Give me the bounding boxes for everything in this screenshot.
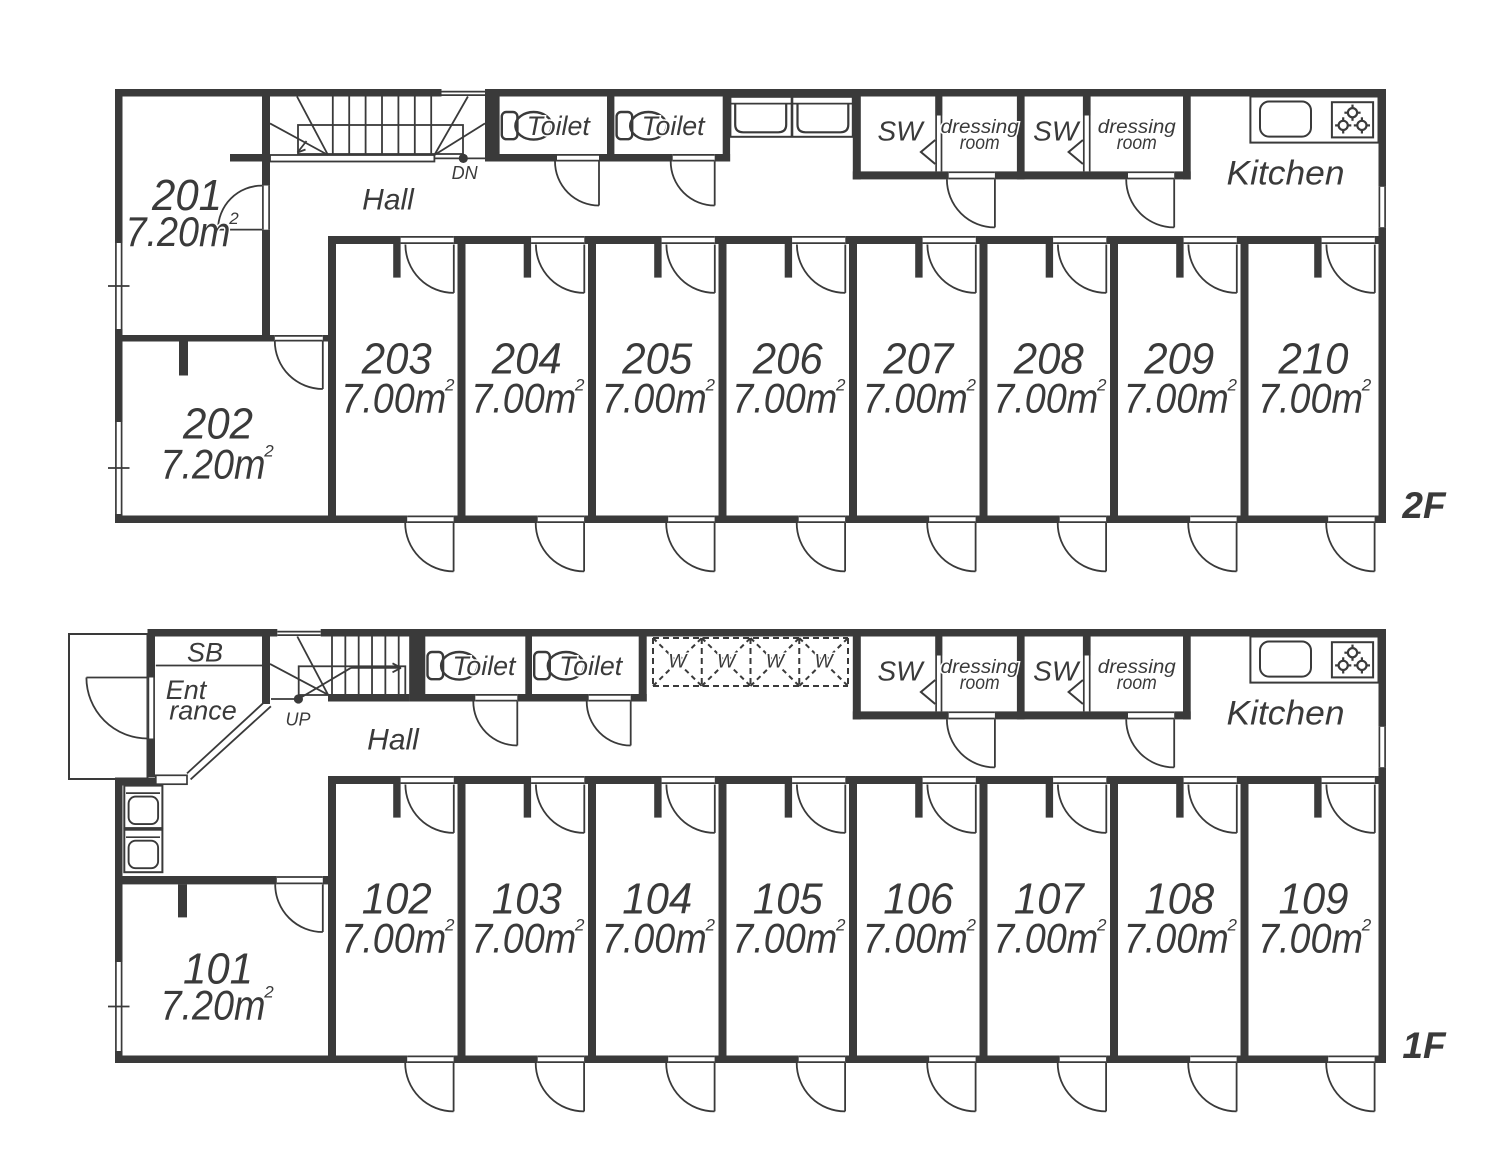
svg-text:Kitchen: Kitchen (1227, 154, 1345, 192)
svg-text:Hall: Hall (367, 724, 420, 757)
svg-text:7.00m: 7.00m (1124, 375, 1229, 422)
svg-text:7.20m: 7.20m (126, 208, 231, 255)
svg-text:2: 2 (705, 376, 716, 395)
svg-text:1F: 1F (1402, 1025, 1447, 1066)
svg-text:7.00m: 7.00m (863, 375, 968, 422)
svg-text:Toilet: Toilet (559, 651, 624, 681)
svg-text:W: W (815, 652, 835, 673)
svg-text:7.20m: 7.20m (161, 441, 266, 488)
svg-text:rance: rance (169, 696, 237, 726)
svg-text:7.00m: 7.00m (1124, 915, 1229, 962)
svg-text:2: 2 (263, 442, 274, 461)
svg-text:7.00m: 7.00m (993, 915, 1098, 962)
svg-text:2: 2 (1227, 376, 1238, 395)
svg-text:Toilet: Toilet (453, 651, 518, 681)
svg-text:W: W (668, 652, 688, 673)
svg-text:2: 2 (1361, 916, 1372, 935)
svg-text:2: 2 (1096, 916, 1107, 935)
svg-text:2F: 2F (1401, 485, 1447, 526)
svg-text:7.00m: 7.00m (732, 915, 837, 962)
svg-text:2: 2 (263, 983, 274, 1002)
svg-text:SW: SW (877, 116, 925, 147)
svg-text:room: room (1117, 133, 1157, 154)
svg-text:Kitchen: Kitchen (1227, 694, 1345, 732)
svg-text:room: room (960, 673, 1000, 694)
svg-text:2: 2 (1227, 916, 1238, 935)
svg-text:2: 2 (835, 916, 846, 935)
svg-text:Hall: Hall (362, 184, 415, 217)
svg-text:2: 2 (966, 376, 977, 395)
svg-text:7.00m: 7.00m (993, 375, 1098, 422)
svg-text:2: 2 (574, 376, 585, 395)
svg-text:7.00m: 7.00m (341, 915, 446, 962)
svg-text:2: 2 (228, 209, 239, 228)
svg-text:SW: SW (877, 656, 925, 687)
svg-text:7.00m: 7.00m (602, 375, 707, 422)
svg-text:7.00m: 7.00m (341, 375, 446, 422)
svg-text:7.00m: 7.00m (471, 915, 576, 962)
svg-text:7.00m: 7.00m (602, 915, 707, 962)
svg-text:room: room (960, 133, 1000, 154)
svg-text:SW: SW (1033, 656, 1081, 687)
svg-text:UP: UP (285, 710, 310, 730)
svg-text:2: 2 (705, 916, 716, 935)
svg-text:2: 2 (574, 916, 585, 935)
svg-text:SB: SB (187, 638, 223, 668)
svg-text:7.20m: 7.20m (161, 982, 266, 1029)
svg-text:2: 2 (966, 916, 977, 935)
svg-text:7.00m: 7.00m (863, 915, 968, 962)
svg-text:2: 2 (444, 916, 455, 935)
svg-text:7.00m: 7.00m (732, 375, 837, 422)
svg-text:2: 2 (444, 376, 455, 395)
svg-text:W: W (717, 652, 737, 673)
svg-text:2: 2 (1361, 376, 1372, 395)
svg-text:7.00m: 7.00m (471, 375, 576, 422)
svg-text:7.00m: 7.00m (1258, 375, 1363, 422)
svg-text:Toilet: Toilet (642, 111, 707, 141)
svg-text:SW: SW (1033, 116, 1081, 147)
svg-text:7.00m: 7.00m (1258, 915, 1363, 962)
svg-text:W: W (766, 652, 786, 673)
svg-text:2: 2 (835, 376, 846, 395)
svg-text:2: 2 (1096, 376, 1107, 395)
svg-text:Toilet: Toilet (527, 111, 592, 141)
svg-text:room: room (1117, 673, 1157, 694)
svg-text:DN: DN (452, 163, 479, 183)
